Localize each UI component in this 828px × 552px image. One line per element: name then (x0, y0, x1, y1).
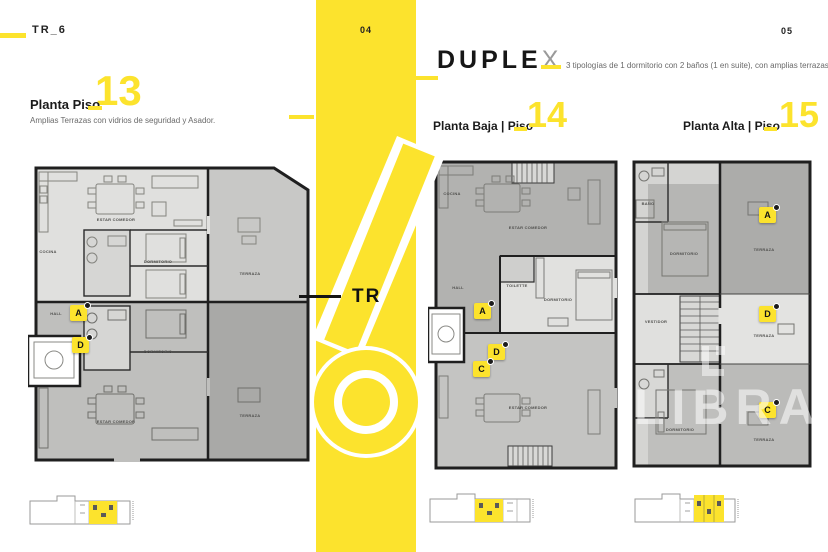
floor-plan-14-drawing (428, 158, 624, 478)
page-number-04: 04 (316, 25, 416, 35)
left-edge-accent-dash (0, 33, 26, 38)
unit-badge-d: D (72, 337, 89, 353)
keyplan-14-drawing (427, 485, 537, 529)
room-label: HALL (452, 286, 464, 291)
room-label: COCINA (39, 250, 56, 255)
room-label: DORMITORIO (144, 260, 172, 265)
duplex-right-dash (541, 65, 561, 69)
unit-badge-c: C (473, 361, 490, 377)
floor-plan-piso-13: ESTAR COMEDOR COCINA DORMITORIO TERRAZA … (28, 162, 312, 480)
planta-alta-dash (764, 127, 777, 131)
keyplan-piso-14 (427, 485, 537, 534)
duplex-left-dash (416, 76, 438, 80)
room-label: DORMITORIO (666, 428, 694, 433)
room-label: TERRAZA (754, 438, 775, 443)
brochure-spread: TR_6 Planta Piso 13 Amplias Terrazas con… (0, 0, 828, 552)
doc-code: TR_6 (32, 24, 67, 36)
room-label: TOILETTE (506, 284, 527, 289)
floor-number-15: 15 (779, 97, 819, 133)
duplex-title: DUPLEX (437, 46, 562, 75)
unit-badge-d: D (759, 306, 776, 322)
room-label: TERRAZA (754, 334, 775, 339)
room-label: BAÑO (642, 202, 655, 207)
room-label: ESTAR COMEDOR (509, 406, 547, 411)
unit-badge-c: C (759, 402, 776, 418)
keyplan-15-drawing (632, 485, 742, 529)
floor-number-14: 14 (527, 97, 567, 133)
room-label: TERRAZA (754, 248, 775, 253)
room-label: DORMITORIO (670, 252, 698, 257)
room-label: TERRAZA (240, 272, 261, 277)
page-number-05: 05 (781, 26, 793, 36)
room-label: COCINA (443, 192, 460, 197)
floor-plan-piso-13-drawing (28, 162, 312, 480)
floor-plan-planta-alta-15: BAÑO DORMITORIO TERRAZA VESTIDOR TERRAZA… (628, 158, 816, 478)
keyplan-13-drawing (27, 487, 137, 531)
keyplan-piso-15 (632, 485, 742, 534)
tower-prefix: TR (352, 286, 381, 308)
floor-plan-15-drawing (628, 158, 816, 478)
room-label: VESTIDOR (645, 320, 667, 325)
room-label: TERRAZA (240, 414, 261, 419)
room-label: DORMITORIO (144, 350, 172, 355)
mid-accent-dash (289, 115, 314, 119)
left-heading-dash (88, 106, 102, 110)
unit-badge-a: A (759, 207, 776, 223)
planta-baja-dash (514, 127, 527, 131)
duplex-subtitle: 3 tipologías de 1 dormitorio con 2 baños… (566, 61, 828, 70)
left-plan-subtitle: Amplias Terrazas con vidrios de segurida… (30, 116, 215, 125)
unit-badge-a: A (474, 303, 491, 319)
floor-plan-planta-baja-14: COCINA ESTAR COMEDOR HALL TOILETTE DORMI… (428, 158, 624, 478)
room-label: HALL (50, 312, 62, 317)
keyplan-piso-13 (27, 487, 137, 536)
room-label: ESTAR COMEDOR (509, 226, 547, 231)
room-label: DORMITORIO (544, 298, 572, 303)
duplex-title-main: DUPLE (437, 46, 542, 74)
room-label: ESTAR COMEDOR (97, 218, 135, 223)
tr-dash (299, 295, 341, 298)
floor-number-13: 13 (95, 70, 142, 112)
unit-badge-a: A (70, 305, 87, 321)
duplex-title-x: X (542, 46, 563, 74)
room-label: ESTAR COMEDOR (97, 420, 135, 425)
